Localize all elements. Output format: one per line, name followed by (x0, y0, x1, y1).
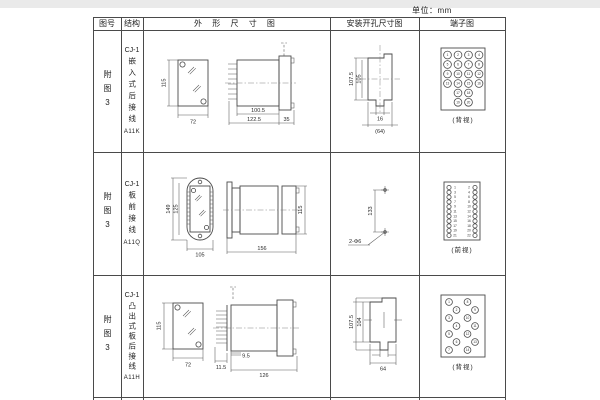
header-outline: 外 形 尺 寸 图 (143, 17, 330, 30)
terminal-number: 3 (454, 190, 456, 194)
terminal-number: 5 (454, 195, 456, 199)
terminal-circle (447, 233, 451, 237)
terminal-number: 3 (448, 316, 450, 320)
terminal-number: 12 (467, 210, 471, 214)
terminal-caption-row1: (背视) (452, 115, 473, 124)
terminal-number: 8 (467, 300, 469, 304)
terminal-circle (447, 200, 451, 204)
dim-label: 133 (368, 206, 374, 215)
terminal-number: 16 (477, 82, 481, 86)
terminal-number: 2 (456, 308, 458, 312)
dim-label: 35 (283, 117, 289, 123)
terminal-circle (447, 205, 451, 209)
dim-label: (64) (375, 129, 385, 135)
terminal-circle (473, 205, 477, 209)
terminal-circle (473, 195, 477, 199)
terminal-number: 11 (473, 324, 477, 328)
header-install: 安装开孔尺寸图 (330, 17, 419, 30)
terminal-drawing-row1: (背视) 1234567891011121314151617181920 (419, 30, 505, 152)
outline-drawing-row3: 115 72 11.5 9.5 126 (143, 275, 330, 397)
terminal-circle (473, 224, 477, 228)
terminal-number: 13 (446, 82, 450, 86)
dim-label: 9.5 (242, 354, 250, 360)
terminal-circle (473, 214, 477, 218)
mount-type-row3: 凸出式板后接线 (128, 302, 136, 372)
terminal-number: 7 (448, 348, 450, 352)
dim-label: 149 (166, 204, 172, 213)
dim-label: 105 (195, 253, 204, 259)
dim-label: 115 (157, 322, 163, 331)
dim-label: 100.5 (251, 108, 265, 114)
terminal-number: 8 (468, 200, 470, 204)
terminal-number: 10 (466, 316, 470, 320)
terminal-circle (473, 185, 477, 189)
terminal-number: 11 (453, 210, 457, 214)
install-drawing-row1: 107.5 105 16 (64) (330, 30, 419, 152)
model-code-row1: A11K (124, 129, 140, 135)
scan-top-band (0, 0, 600, 8)
terminal-circle (473, 209, 477, 213)
terminal-number: 1 (454, 186, 456, 190)
cell-structure-row3: CJ-1 凸出式板后接线 A11H (121, 275, 143, 397)
terminal-number: 19 (456, 100, 460, 104)
cell-structure-row1: CJ-1 嵌入式后接线 A11K (121, 30, 143, 152)
terminal-caption-row3: (背视) (452, 362, 473, 371)
dim-label: 72 (185, 363, 191, 369)
terminal-number: 9 (447, 72, 449, 76)
terminal-number: 3 (468, 53, 470, 57)
terminal-number: 16 (467, 219, 471, 223)
terminal-number: 9 (454, 205, 456, 209)
terminal-number: 4 (468, 190, 470, 194)
cell-fig-no-row2: 附图3 (93, 152, 121, 275)
terminal-number: 5 (447, 63, 449, 67)
fig-no-row2: 附图3 (103, 192, 111, 235)
terminal-number: 18 (467, 91, 471, 95)
unit-label: 单位：mm (412, 5, 452, 16)
dim-label: 125 (174, 204, 180, 213)
terminal-number: 13 (473, 340, 477, 344)
terminal-number: 7 (468, 63, 470, 67)
terminal-circle (447, 224, 451, 228)
terminal-circle (473, 219, 477, 223)
terminal-number: 6 (468, 195, 470, 199)
model-row2: CJ-1 (125, 181, 140, 188)
mount-type-row1: 嵌入式后接线 (128, 57, 136, 126)
terminal-number: 22 (467, 234, 471, 238)
terminal-number: 20 (467, 100, 471, 104)
terminal-caption-row2: (前视) (451, 245, 472, 254)
terminal-number: 4 (456, 324, 458, 328)
dim-label: 126 (259, 373, 268, 379)
dim-label: 72 (190, 120, 196, 126)
install-drawing-row3: 107.5 104 64 (330, 275, 419, 397)
terminal-circle (473, 233, 477, 237)
terminal-number: 1 (448, 300, 450, 304)
dim-label: 64 (380, 367, 386, 373)
terminal-number: 2 (457, 53, 459, 57)
table-right-border (505, 17, 506, 400)
row-divider-3 (93, 397, 505, 398)
model-code-row2: A11Q (124, 240, 141, 246)
terminal-number: 20 (467, 229, 471, 233)
terminal-number: 7 (454, 200, 456, 204)
terminal-circle (447, 219, 451, 223)
terminal-number: 12 (466, 332, 470, 336)
cell-structure-row2: CJ-1 板前接线 A11Q (121, 152, 143, 275)
terminal-drawing-row2: (前视) 12345678910111213141516171819202122 (419, 152, 505, 275)
terminal-number: 14 (466, 348, 470, 352)
terminal-number: 4 (478, 53, 480, 57)
terminal-circle (447, 209, 451, 213)
terminal-number: 8 (478, 63, 480, 67)
terminal-drawing-row3: (背视) 1234567891011121314 (419, 275, 505, 397)
model-row3: CJ-1 (125, 292, 140, 299)
dim-label: 115 (298, 206, 304, 215)
terminal-number: 1 (447, 53, 449, 57)
terminal-number: 2 (468, 186, 470, 190)
terminal-number: 10 (456, 72, 460, 76)
model-code-row3: A11H (124, 375, 141, 381)
terminal-number: 5 (448, 332, 450, 336)
mount-type-row2: 板前接线 (128, 191, 136, 237)
terminal-number: 12 (477, 72, 481, 76)
terminal-circle (447, 195, 451, 199)
terminal-circle (447, 229, 451, 233)
dim-label: 107.5 (349, 72, 355, 86)
terminal-circle (473, 229, 477, 233)
document-page: 单位：mm 图号 结构 外 形 尺 寸 图 安装开孔尺寸图 端子图 附图3 CJ… (0, 0, 600, 400)
terminal-number: 15 (467, 82, 471, 86)
terminal-number: 10 (467, 205, 471, 209)
terminal-number: 19 (453, 229, 457, 233)
dim-label: 156 (257, 246, 266, 252)
terminal-number: 17 (456, 91, 460, 95)
hole-spec-label: 2-Φ6 (349, 239, 361, 245)
terminal-number: 21 (453, 234, 457, 238)
header-terminal: 端子图 (419, 17, 505, 30)
dim-label: 105 (357, 74, 363, 83)
outline-drawing-row1: 115 72 100.5 122.5 35 (143, 30, 330, 152)
terminal-number: 14 (467, 214, 471, 218)
fig-no-row1: 附图3 (103, 70, 111, 113)
cell-fig-no-row3: 附图3 (93, 275, 121, 397)
dim-label: 122.5 (247, 117, 261, 123)
terminal-number: 9 (474, 308, 476, 312)
terminal-circle (473, 200, 477, 204)
terminal-circle (447, 190, 451, 194)
install-drawing-row2: 133 2-Φ6 (330, 152, 419, 275)
header-fig-no: 图号 (93, 17, 121, 30)
terminal-number: 17 (453, 224, 457, 228)
dim-label: 107.5 (349, 315, 355, 329)
terminal-circle (447, 214, 451, 218)
model-row1: CJ-1 (125, 47, 140, 54)
header-structure: 结构 (121, 17, 143, 30)
terminal-number: 13 (453, 214, 457, 218)
terminal-number: 6 (456, 340, 458, 344)
dim-label: 16 (377, 117, 383, 123)
terminal-number: 18 (467, 224, 471, 228)
cell-fig-no-row1: 附图3 (93, 30, 121, 152)
terminal-number: 14 (456, 82, 460, 86)
fig-no-row3: 附图3 (103, 315, 111, 358)
dim-label: 104 (357, 317, 363, 326)
terminal-number: 11 (467, 72, 471, 76)
dim-label: 11.5 (216, 365, 226, 371)
dim-label: 115 (162, 79, 168, 88)
terminal-number: 6 (457, 63, 459, 67)
outline-drawing-row2: 149 125 105 156 115 (143, 152, 330, 275)
terminal-circle (473, 190, 477, 194)
terminal-number: 15 (453, 219, 457, 223)
terminal-circle (447, 185, 451, 189)
